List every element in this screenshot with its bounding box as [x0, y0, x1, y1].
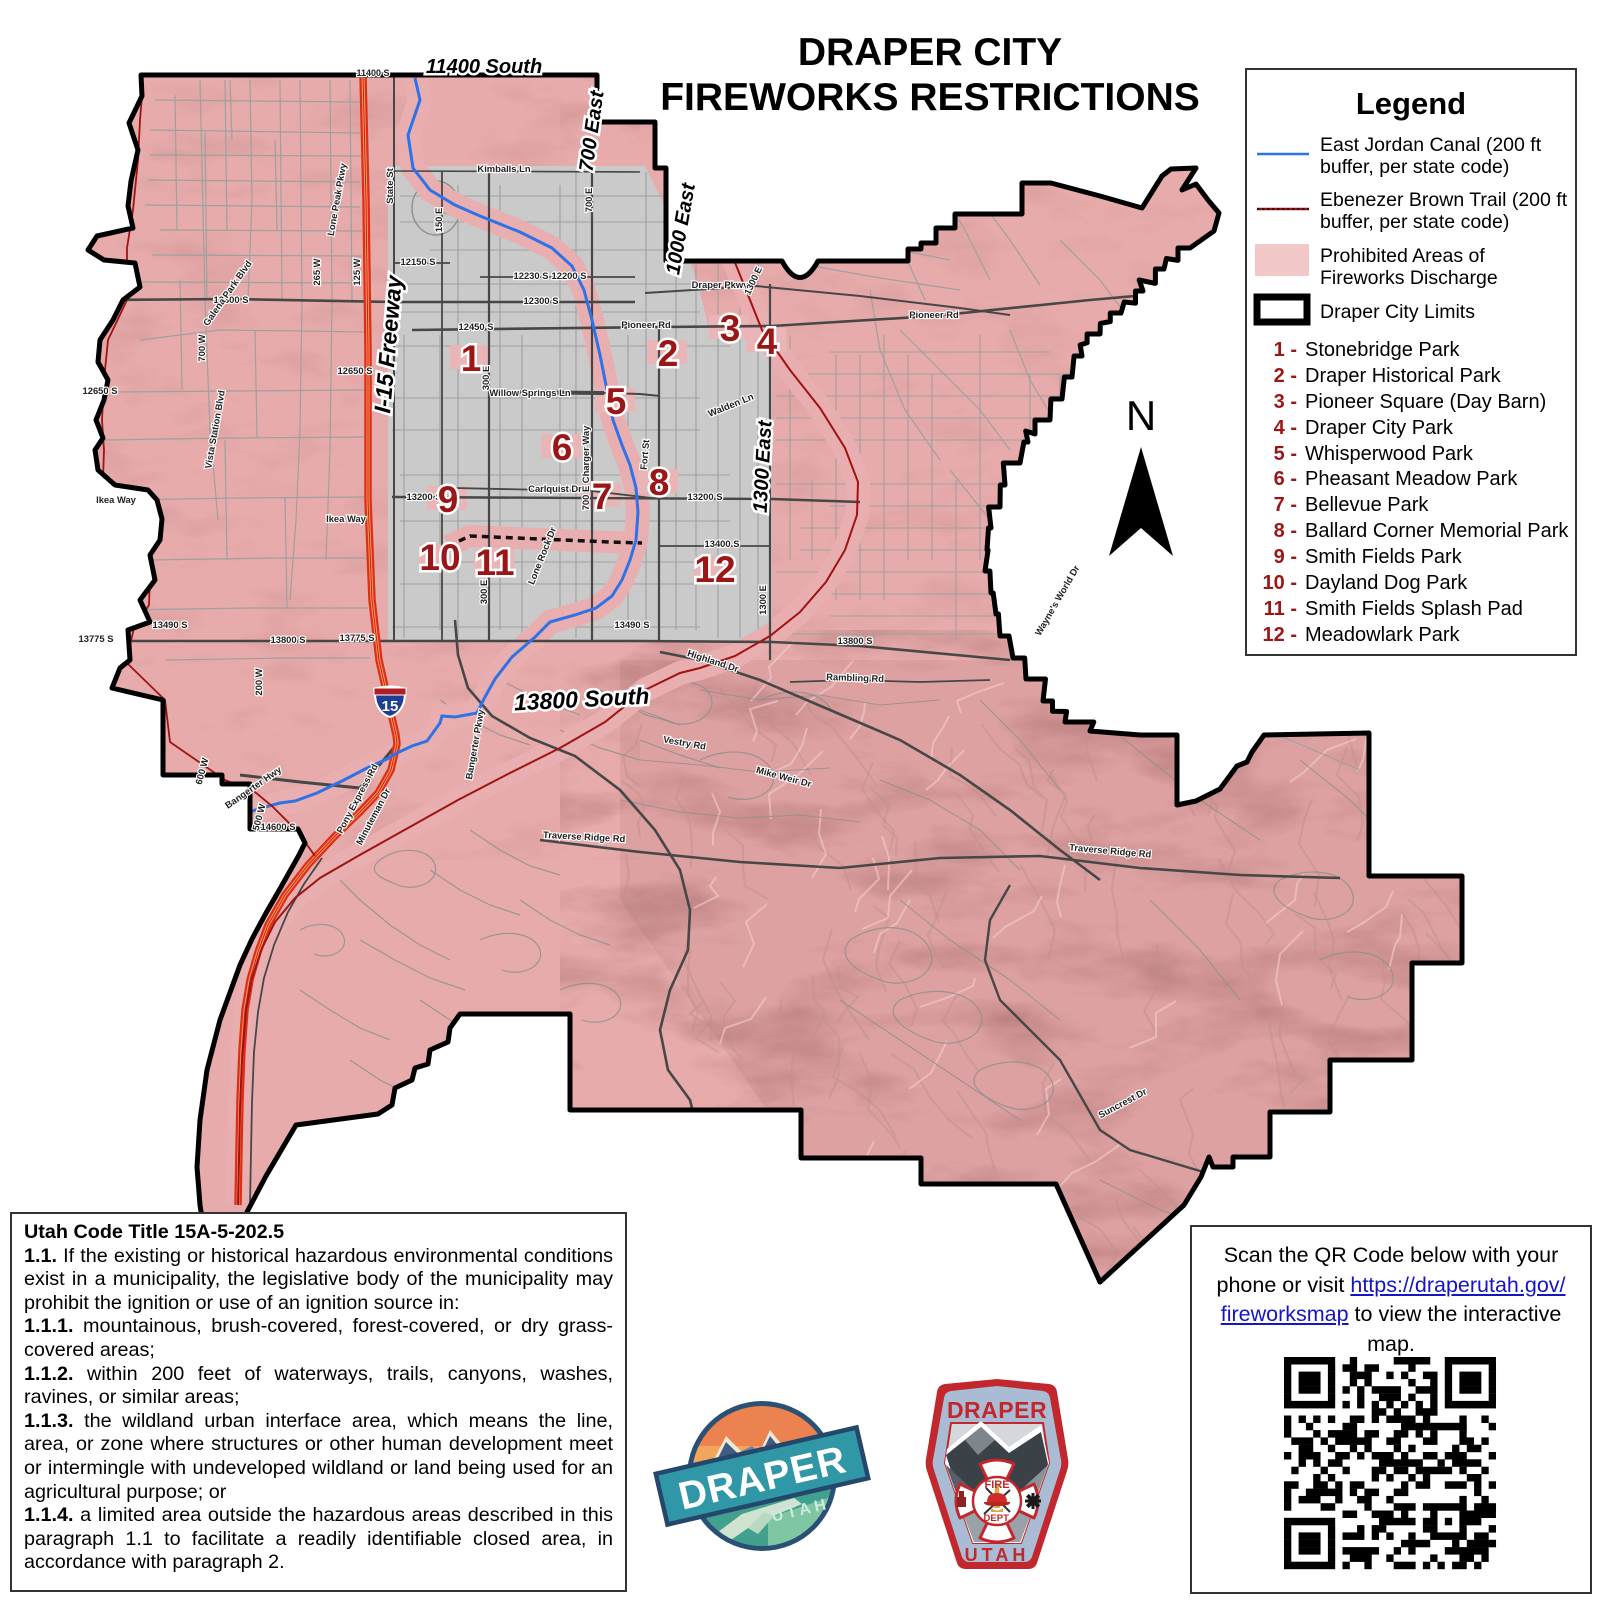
svg-text:9: 9 [438, 479, 459, 520]
svg-text:12450 S: 12450 S [459, 321, 494, 332]
svg-text:DEPT.: DEPT. [984, 1513, 1011, 1524]
svg-text:11: 11 [475, 542, 514, 583]
svg-text:13775 S: 13775 S [79, 633, 114, 644]
svg-text:6: 6 [552, 427, 573, 468]
svg-text:Ikea Way: Ikea Way [326, 513, 367, 524]
svg-text:700 W: 700 W [196, 334, 207, 361]
svg-text:Kimballs Ln: Kimballs Ln [477, 163, 530, 174]
svg-text:15: 15 [382, 698, 399, 715]
svg-text:13490 S: 13490 S [615, 619, 650, 630]
svg-text:13200 S: 13200 S [407, 491, 442, 502]
svg-text:13200 S: 13200 S [688, 491, 723, 502]
svg-text:1300 E: 1300 E [757, 585, 768, 615]
svg-text:13800 S: 13800 S [271, 634, 306, 645]
svg-text:12230 S: 12230 S [514, 270, 549, 281]
svg-text:12650 S: 12650 S [83, 385, 118, 396]
svg-text:300 E: 300 E [478, 580, 489, 605]
svg-text:UTAH: UTAH [965, 1545, 1030, 1565]
svg-text:150 E: 150 E [433, 208, 444, 233]
svg-text:Pioneer Rd: Pioneer Rd [621, 319, 671, 330]
svg-text:2: 2 [658, 333, 679, 374]
svg-text:10: 10 [419, 537, 460, 578]
svg-text:Ikea Way: Ikea Way [96, 494, 137, 505]
svg-text:State St: State St [385, 167, 396, 204]
svg-text:Rambling Rd: Rambling Rd [826, 671, 884, 684]
svg-text:700 E Charger Way: 700 E Charger Way [580, 425, 591, 510]
svg-text:1: 1 [461, 338, 482, 379]
svg-text:265 W: 265 W [311, 258, 322, 285]
svg-text:13490 S: 13490 S [153, 619, 188, 630]
svg-text:FIRE: FIRE [984, 1479, 1009, 1491]
svg-text:12300 S: 12300 S [524, 295, 559, 306]
svg-text:DRAPER: DRAPER [947, 1397, 1047, 1423]
svg-text:12: 12 [694, 549, 735, 590]
svg-text:Carlquist Dr: Carlquist Dr [528, 483, 582, 494]
svg-text:12200 S: 12200 S [552, 270, 587, 281]
svg-text:11400 South: 11400 South [426, 56, 542, 78]
svg-text:7: 7 [592, 476, 613, 517]
svg-text:13775 S: 13775 S [340, 632, 375, 643]
svg-text:Pioneer Rd: Pioneer Rd [909, 309, 959, 320]
svg-text:700 E: 700 E [583, 188, 594, 213]
svg-text:8: 8 [649, 462, 670, 503]
svg-text:12150 S: 12150 S [401, 256, 436, 267]
svg-text:3: 3 [720, 308, 741, 349]
svg-text:12650 S: 12650 S [338, 365, 373, 376]
svg-text:13400 S: 13400 S [705, 538, 740, 549]
svg-text:N: N [1126, 392, 1156, 439]
svg-text:Wayne's World Dr: Wayne's World Dr [1032, 563, 1081, 638]
svg-text:11400 S: 11400 S [356, 68, 389, 78]
svg-text:Willow Springs Ln: Willow Springs Ln [489, 387, 570, 398]
svg-text:5: 5 [606, 381, 627, 422]
svg-text:4: 4 [757, 321, 778, 362]
svg-text:125 W: 125 W [351, 258, 362, 285]
svg-text:Draper Pkwy: Draper Pkwy [692, 279, 750, 290]
svg-text:300 E: 300 E [480, 366, 491, 391]
svg-text:14600 S: 14600 S [261, 821, 296, 832]
svg-text:200 W: 200 W [253, 668, 264, 695]
svg-text:13800 S: 13800 S [838, 635, 873, 646]
